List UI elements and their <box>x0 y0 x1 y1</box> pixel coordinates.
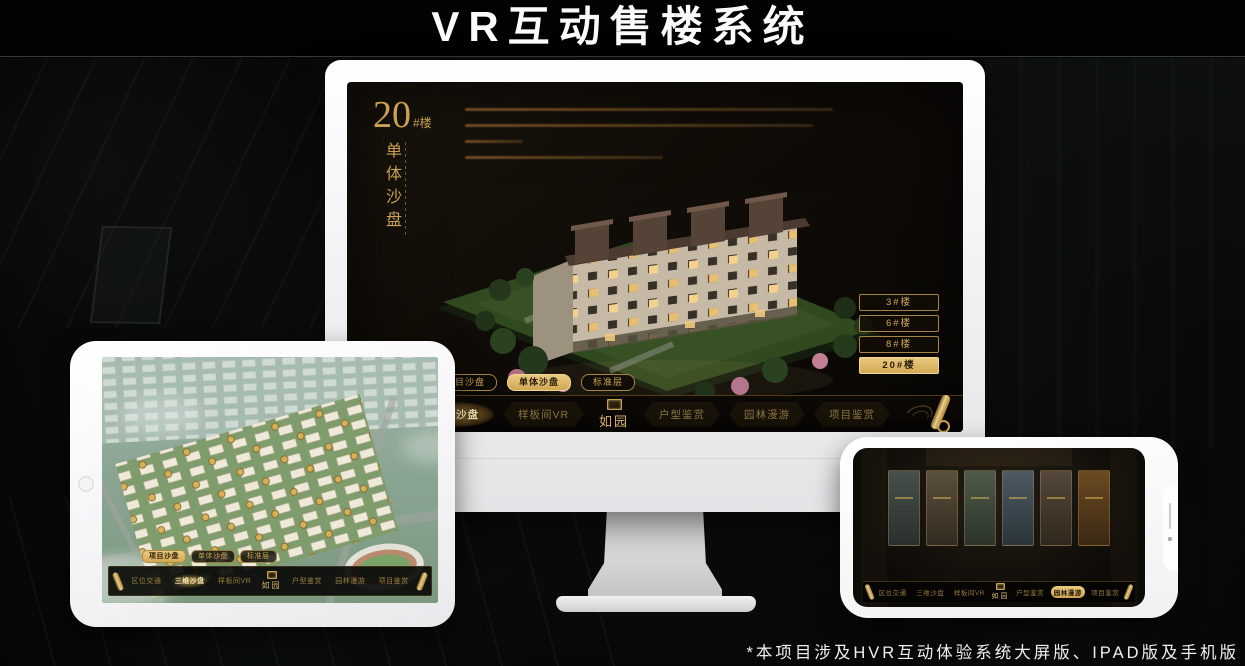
scene-gallery <box>888 470 1110 546</box>
unit-subtitle: 单体沙盘 <box>379 142 403 262</box>
building-render <box>405 156 905 398</box>
unit-suffix: #楼 <box>413 116 432 130</box>
nav-item-project-gallery[interactable]: 项目鉴赏 <box>376 574 412 588</box>
background-collage <box>985 58 1245 448</box>
nav-item-project-gallery[interactable]: 项目鉴赏 <box>1088 586 1122 598</box>
unit-number: 20 <box>373 94 411 136</box>
view-tab-group: 项目沙盘 单体沙盘 标准层 <box>433 374 635 391</box>
monitor-stand-base <box>556 596 756 612</box>
tablet-screen: 项目沙盘 单体沙盘 标准层 区位交通 三维沙盘 样板间VR 如园 户型鉴赏 园林… <box>102 357 438 603</box>
seal-icon <box>267 571 277 579</box>
nav-item-location[interactable]: 区位交通 <box>128 574 164 588</box>
nav-item-floorplans[interactable]: 户型鉴赏 <box>289 574 325 588</box>
nav-item-3d-sandbox[interactable]: 三维沙盘 <box>913 586 947 598</box>
gallery-card[interactable] <box>1078 470 1110 546</box>
tablet-view-tabs: 项目沙盘 单体沙盘 标准层 <box>142 550 277 563</box>
footnote: *本项目涉及HVR互动体验系统大屏版、IPAD版及手机版 <box>746 639 1239 663</box>
scroll-icon[interactable] <box>905 398 953 430</box>
nav-item-garden-tour[interactable]: 园林漫游 <box>1051 586 1085 598</box>
tablet: 项目沙盘 单体沙盘 标准层 区位交通 三维沙盘 样板间VR 如园 户型鉴赏 园林… <box>70 341 455 627</box>
nav-item-garden-tour[interactable]: 园林漫游 <box>735 403 799 426</box>
floor-button-6[interactable]: 6#楼 <box>859 315 939 332</box>
tablet-navbar: 区位交通 三维沙盘 样板间VR 如园 户型鉴赏 园林漫游 项目鉴赏 <box>108 566 432 596</box>
scroll-icon[interactable] <box>112 571 125 591</box>
brand-logo: 如园 <box>262 571 282 591</box>
seal-icon <box>996 583 1005 590</box>
gallery-card[interactable] <box>1040 470 1072 546</box>
gallery-card[interactable] <box>1002 470 1034 546</box>
nav-item-floorplans[interactable]: 户型鉴赏 <box>1013 586 1047 598</box>
floor-button-20[interactable]: 20#楼 <box>859 357 939 374</box>
nav-item-garden-tour[interactable]: 园林漫游 <box>332 574 368 588</box>
gallery-card[interactable] <box>926 470 958 546</box>
nav-item-project-gallery[interactable]: 项目鉴赏 <box>820 403 884 426</box>
scroll-icon[interactable] <box>1123 584 1134 601</box>
phone: 区位交通 三维沙盘 样板间VR 如园 户型鉴赏 园林漫游 项目鉴赏 <box>840 437 1178 618</box>
gallery-card[interactable] <box>888 470 920 546</box>
scroll-icon[interactable] <box>416 571 429 591</box>
tab-standard-floor[interactable]: 标准层 <box>581 374 635 391</box>
seal-icon <box>607 399 622 410</box>
floor-button-3[interactable]: 3#楼 <box>859 294 939 311</box>
nav-item-showroom-vr[interactable]: 样板间VR <box>215 574 254 588</box>
brand-logo: 如园 <box>991 583 1009 601</box>
background-collage <box>0 58 330 328</box>
interior-glow <box>926 448 1072 466</box>
tablet-tab-unit-sandbox[interactable]: 单体沙盘 <box>191 550 235 563</box>
nav-item-location[interactable]: 区位交通 <box>876 586 910 598</box>
speaker-slit-icon <box>1169 503 1171 529</box>
phone-notch <box>1163 485 1178 571</box>
phone-screen: 区位交通 三维沙盘 样板间VR 如园 户型鉴赏 园林漫游 项目鉴赏 <box>853 448 1145 607</box>
floor-button-8[interactable]: 8#楼 <box>859 336 939 353</box>
floor-button-group: 3#楼 6#楼 8#楼 20#楼 <box>859 294 939 374</box>
nav-item-floorplans[interactable]: 户型鉴赏 <box>650 403 714 426</box>
stage: VR互动售楼系统 20#楼 单体沙盘 <box>0 0 1245 666</box>
page-title: VR互动售楼系统 <box>0 0 1245 56</box>
tablet-tab-standard-floor[interactable]: 标准层 <box>240 550 277 563</box>
phone-navbar: 区位交通 三维沙盘 样板间VR 如园 户型鉴赏 园林漫游 项目鉴赏 <box>863 581 1135 602</box>
brand-logo: 如园 <box>599 399 629 430</box>
tablet-tab-project-sandbox[interactable]: 项目沙盘 <box>142 550 186 563</box>
scroll-icon[interactable] <box>864 584 875 601</box>
monitor-stand-neck <box>588 512 722 600</box>
camera-icon <box>1168 537 1172 541</box>
nav-item-showroom-vr[interactable]: 样板间VR <box>951 586 988 598</box>
tab-unit-sandbox[interactable]: 单体沙盘 <box>507 374 571 391</box>
background-plaque <box>90 226 172 324</box>
gallery-card[interactable] <box>964 470 996 546</box>
title-divider <box>0 56 1245 57</box>
home-button[interactable] <box>78 476 94 492</box>
nav-item-showroom-vr[interactable]: 样板间VR <box>509 403 578 426</box>
nav-item-3d-sandbox[interactable]: 三维沙盘 <box>172 574 208 588</box>
